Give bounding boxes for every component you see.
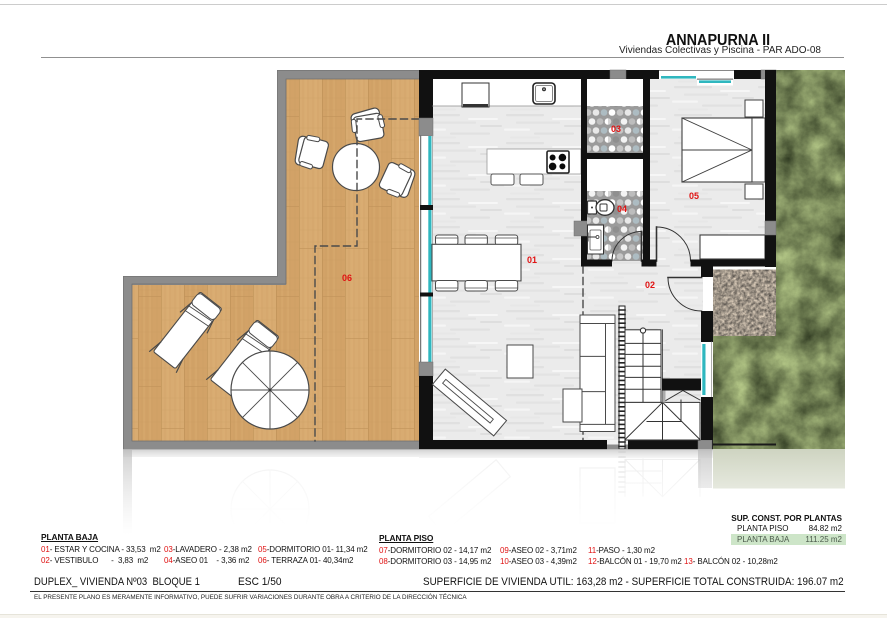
svg-text:06: 06	[342, 273, 352, 283]
svg-text:05: 05	[689, 191, 699, 201]
svg-text:04: 04	[617, 204, 627, 214]
svg-text:01: 01	[527, 255, 537, 265]
svg-text:03: 03	[611, 124, 621, 134]
svg-text:02: 02	[645, 280, 655, 290]
